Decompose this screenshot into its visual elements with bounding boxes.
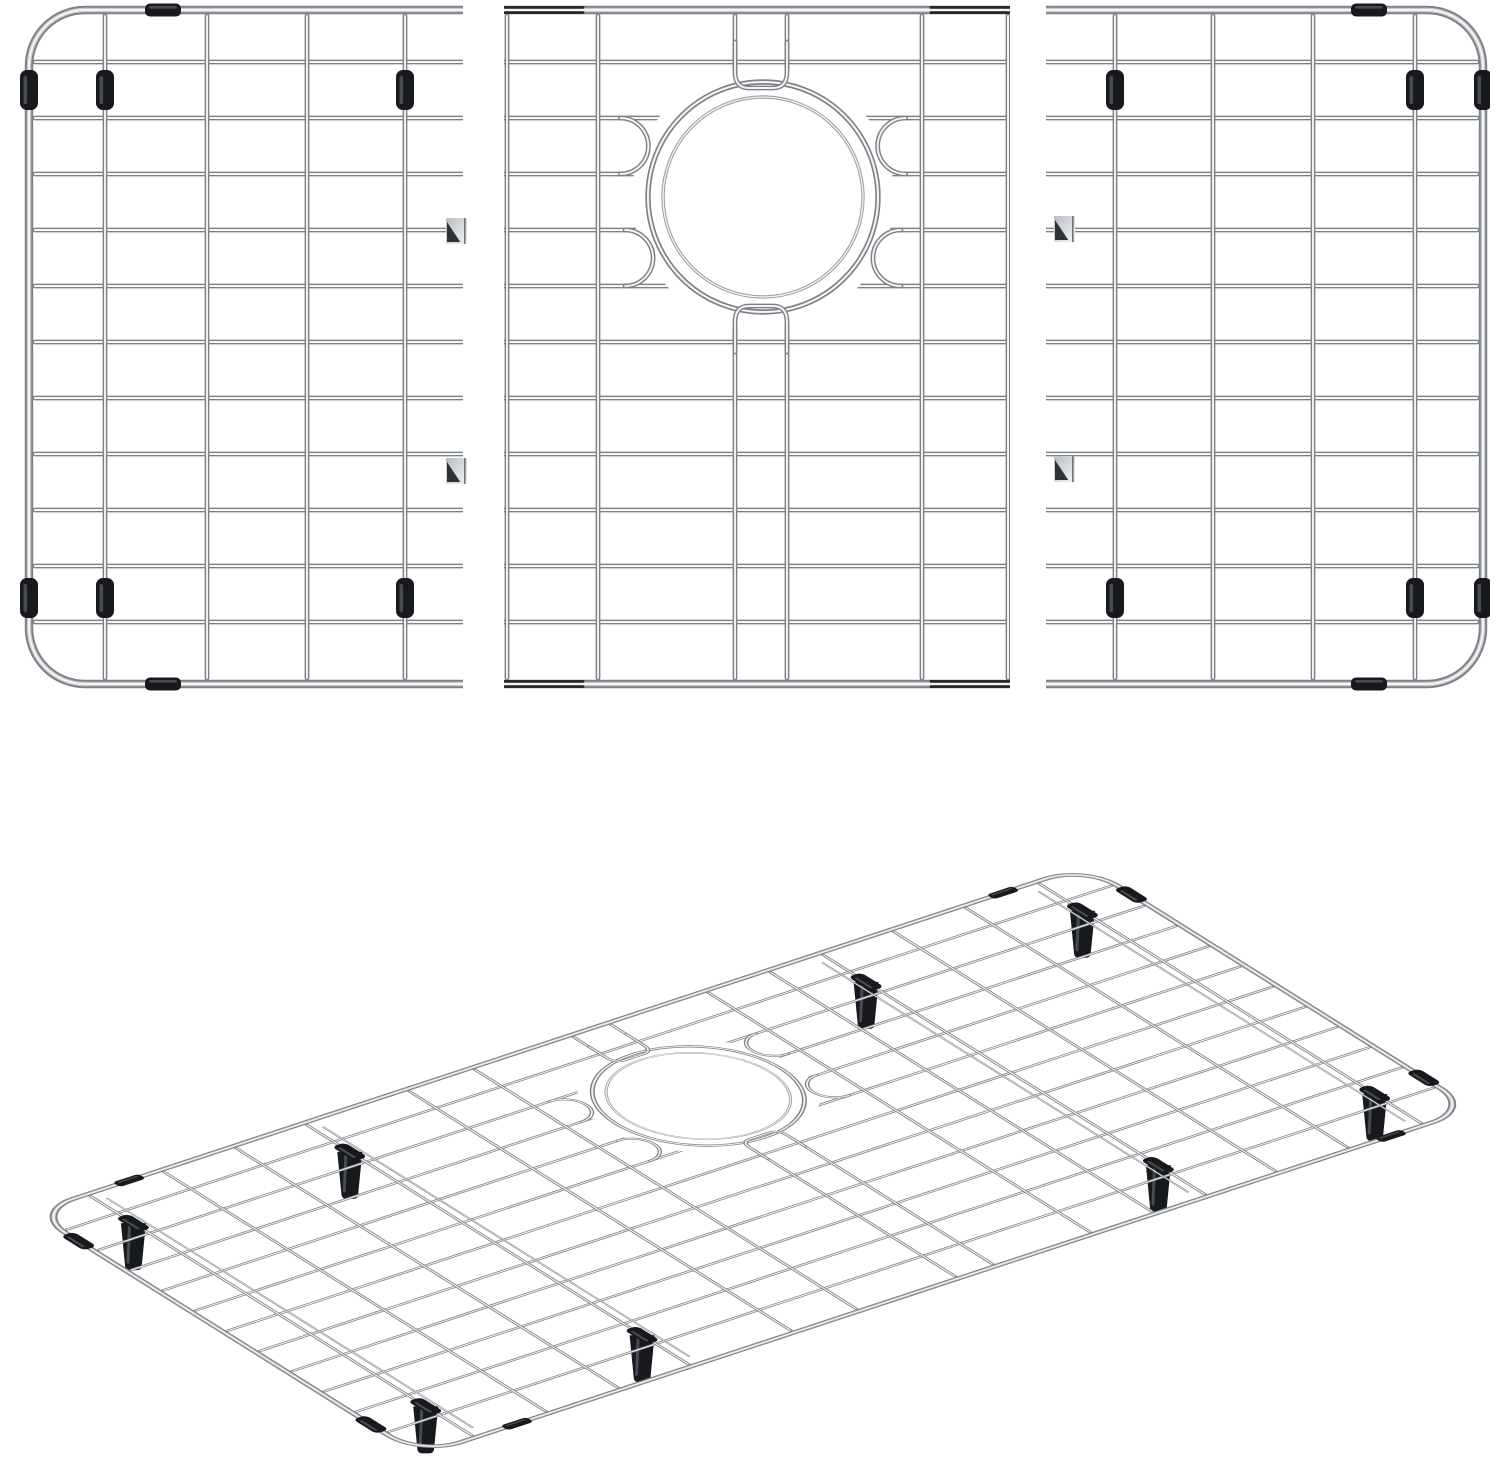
- separator-edge-line: [464, 218, 466, 244]
- rubber-foot-highlight: [861, 986, 863, 1021]
- grid-perspective-view: [22, 861, 1483, 1460]
- rubber-foot-highlight: [1369, 1098, 1371, 1133]
- rubber-foot-highlight: [420, 1410, 422, 1445]
- separator-edge-line: [1072, 456, 1074, 482]
- separator-clip-square: [1054, 456, 1075, 482]
- product-image-canvas: [0, 0, 1500, 1483]
- rubber-foot-highlight: [128, 1227, 130, 1262]
- grid-center-section: [0, 4, 1458, 691]
- perspective-grid-use: [22, 861, 1483, 1460]
- separator-clip-square: [1054, 216, 1075, 242]
- center-section-grid-use: [0, 4, 1458, 691]
- rubber-foot-highlight: [344, 1156, 346, 1191]
- separator-edge-line: [1072, 216, 1074, 242]
- product-image: [0, 0, 1500, 1483]
- rubber-foot-highlight: [637, 1339, 639, 1374]
- separator-clip-square: [446, 218, 467, 244]
- separator-clip-square: [446, 458, 467, 484]
- separator-edge-line: [464, 458, 466, 484]
- rubber-foot-highlight: [1153, 1169, 1155, 1204]
- rubber-foot-highlight: [1077, 915, 1079, 950]
